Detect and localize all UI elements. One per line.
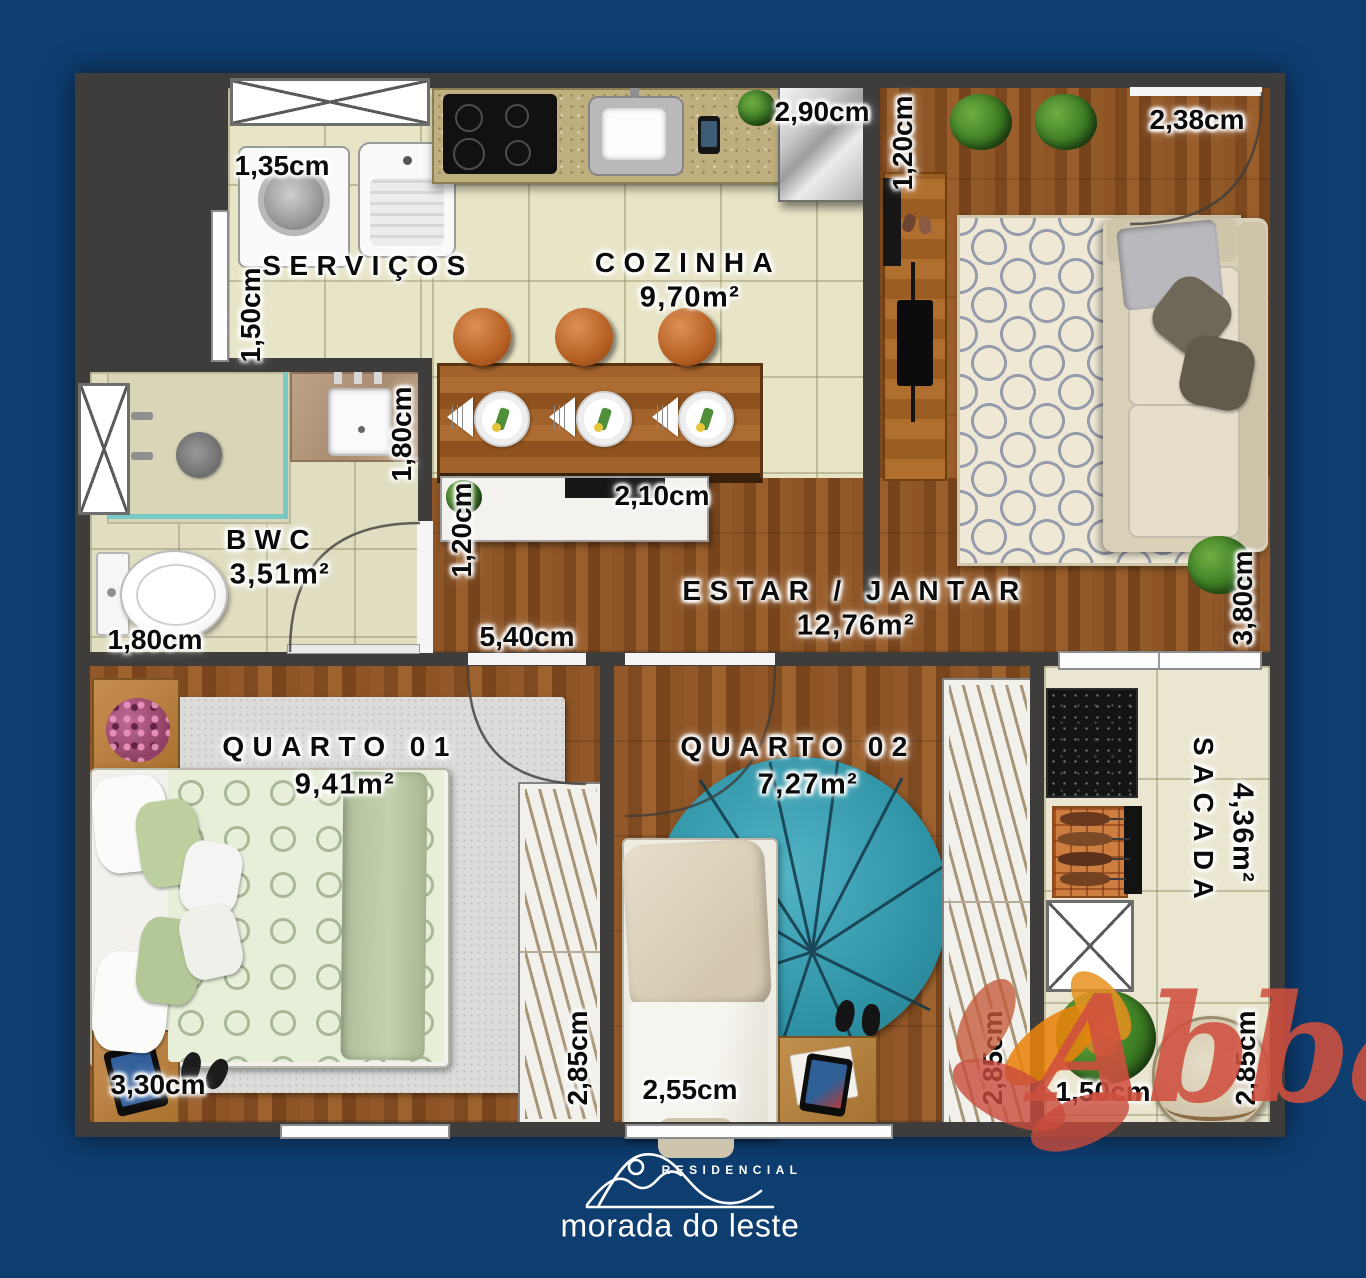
sliding-door-mullion [1158, 653, 1160, 668]
logo-name: morada do leste [560, 1208, 799, 1245]
dim-estar-depth: 3,80cm [1227, 551, 1259, 646]
bed-single-blanket [630, 1002, 768, 1128]
servicos-side-window [211, 210, 229, 362]
burner-icon [505, 140, 531, 166]
dim-servicos-width: 1,35cm [235, 150, 330, 182]
burner-icon [453, 138, 485, 170]
logo-residencial: RESIDENCIAL [662, 1163, 803, 1177]
toilet-seat [136, 564, 216, 626]
kitchen-sink [588, 96, 684, 176]
bar-stool [453, 308, 511, 366]
tablet-screen [805, 1059, 847, 1108]
shower-glass [283, 372, 288, 519]
bwc-taps-icon [334, 372, 382, 384]
tv-cabinet-dark [883, 178, 901, 266]
quarto01-door-opening [468, 653, 586, 665]
quarto01-window [280, 1124, 450, 1139]
dim-entry-door: 2,38cm [1150, 104, 1245, 136]
room-area-sacada: 4,36m² [1226, 783, 1259, 884]
phone-icon [698, 116, 720, 154]
dim-quarto01-depth: 2,85cm [562, 1011, 594, 1106]
bwc-window [78, 383, 130, 515]
dim-bwc-counter: 1,80cm [386, 387, 418, 482]
plate-icon [678, 391, 734, 447]
bed-throw [340, 772, 427, 1061]
bed-single-pillow [622, 838, 773, 1013]
cooktop [443, 94, 557, 174]
bar-stool [555, 308, 613, 366]
watermark-text: Abba [1035, 975, 1366, 1123]
room-area-cozinha: 9,70m² [640, 282, 741, 315]
room-label-servicos: SERVIÇOS [262, 250, 473, 282]
shower-valve-icon [131, 412, 153, 420]
garnish-dot [594, 423, 603, 432]
garnish-dot [696, 423, 705, 432]
floorplan-page: { "plan": { "rooms": { "servicos": {"nam… [0, 0, 1366, 1278]
plate-icon [576, 391, 632, 447]
estar-plant-icon [1035, 94, 1097, 150]
dim-cozinha-width: 2,90cm [775, 96, 870, 128]
cutlery-icon [452, 405, 465, 429]
dim-quarto02-width: 2,55cm [643, 1074, 738, 1106]
meat-skewer-icon [1060, 872, 1110, 886]
counter-plant-icon [738, 90, 776, 126]
wardrobe-divider [520, 951, 602, 953]
estar-plant-icon [950, 94, 1012, 150]
shower-valve-icon [131, 452, 153, 460]
servicos-window [230, 78, 430, 126]
bwc-door-leaf [287, 644, 420, 654]
quarto02-door-opening [625, 653, 775, 665]
dim-buffet-width: 2,10cm [615, 480, 710, 512]
room-area-bwc: 3,51m² [230, 559, 331, 592]
room-label-estar: ESTAR / JANTAR [682, 575, 1027, 607]
dim-servicos-depth: 1,50cm [235, 268, 267, 363]
phone-screen [701, 121, 717, 147]
room-area-quarto01: 9,41m² [295, 769, 396, 802]
sacada-sliding-door [1058, 651, 1262, 670]
room-label-bwc: BWC [226, 524, 318, 556]
tank-drain-icon [403, 156, 412, 165]
room-label-sacada: SACADA [1187, 737, 1219, 907]
wall-tv [863, 88, 880, 603]
meat-skewer-icon [1058, 852, 1112, 866]
tv-icon [897, 300, 933, 386]
room-label-quarto01: QUARTO 01 [222, 731, 457, 763]
cutlery-icon [554, 405, 567, 429]
tablet-icon [799, 1053, 854, 1117]
sink-basin [602, 108, 666, 160]
bwc-door-opening [417, 521, 433, 653]
room-area-estar: 12,76m² [797, 610, 915, 643]
meat-skewer-icon [1060, 812, 1110, 826]
shower-glass [107, 514, 287, 519]
dim-buffet-depth: 1,20cm [446, 483, 478, 578]
wall-quartos-divider [600, 666, 614, 1122]
shower-head-icon [176, 432, 222, 478]
sofa-cushion [1128, 404, 1240, 538]
room-label-quarto02: QUARTO 02 [680, 731, 915, 763]
entry-door-threshold [1130, 87, 1262, 96]
burner-icon [455, 104, 483, 132]
dim-bwc-width: 1,80cm [108, 624, 203, 656]
room-label-cozinha: COZINHA [595, 247, 781, 279]
dim-estar-width: 5,40cm [480, 621, 575, 653]
logo-sun-icon [629, 1160, 643, 1174]
logo-mountains-icon [583, 1145, 783, 1215]
dim-quarto01-width: 3,30cm [111, 1069, 206, 1101]
bar-stool [658, 308, 716, 366]
flowers-icon [106, 698, 170, 762]
meat-skewer-icon [1058, 832, 1112, 846]
grill-side-table [1124, 806, 1142, 894]
quarto02-window [625, 1124, 893, 1139]
garnish-dot [492, 423, 501, 432]
burner-icon [505, 104, 529, 128]
wardrobe-divider [944, 901, 1032, 903]
sink-drain-icon [358, 426, 365, 433]
flush-button-icon [107, 588, 116, 597]
sacada-granite-counter [1046, 688, 1138, 798]
dim-hall-width: 1,20cm [887, 96, 919, 191]
room-area-quarto02: 7,27m² [758, 769, 859, 802]
bwc-sink [328, 388, 392, 456]
cutlery-icon [657, 405, 670, 429]
plate-icon [474, 391, 530, 447]
tank-ridges [370, 178, 444, 246]
